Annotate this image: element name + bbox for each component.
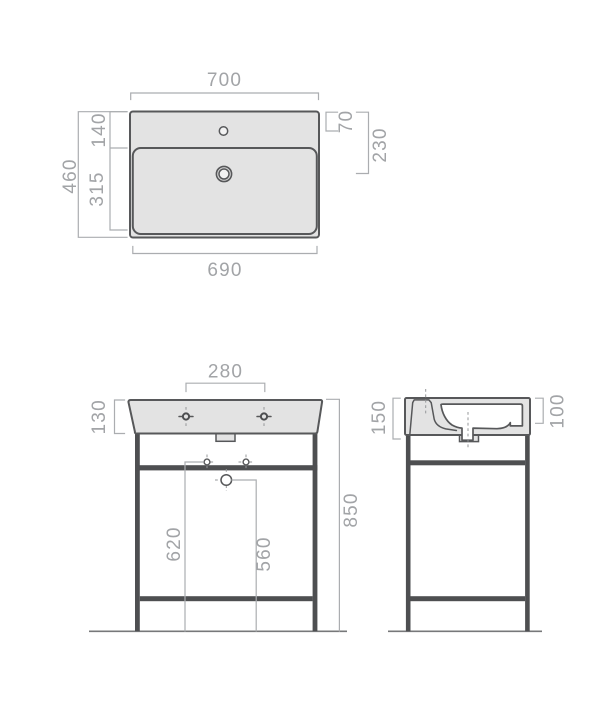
dim-line-total-height <box>327 399 340 631</box>
dim-label-bowl-width: 690 <box>207 260 242 281</box>
siphon-outlet-circle <box>221 475 232 486</box>
dim-label-tap-offset: 70 <box>336 110 357 134</box>
dim-label-hole-height: 620 <box>164 526 185 561</box>
technical-drawing-page: 700 690 460 140 315 70 230 <box>0 0 611 702</box>
dim-label-basin-height: 130 <box>89 399 110 434</box>
dim-label-front-height: 150 <box>369 400 390 435</box>
stand-upper-crossbar-side <box>411 460 526 465</box>
dim-line-hole-height <box>185 462 203 631</box>
dim-label-tap-spacing: 280 <box>208 362 243 383</box>
dim-label-drain-offset: 230 <box>370 127 391 162</box>
dim-line-front-height <box>393 398 400 439</box>
stand-leg-front-side <box>406 435 411 631</box>
dim-line-drain-height <box>232 480 256 631</box>
dim-label-deck-depth: 140 <box>89 112 110 147</box>
tap-hole-top <box>219 127 227 135</box>
stand-lower-crossbar-front <box>140 596 313 601</box>
side-view: 150 100 <box>369 389 569 631</box>
tap-hole-front-left <box>183 413 189 419</box>
dim-line-back-height <box>536 398 544 423</box>
front-view: 280 130 850 620 560 <box>89 362 362 632</box>
stand-leg-left-front <box>135 434 140 632</box>
drawing-canvas: 700 690 460 140 315 70 230 <box>0 0 611 702</box>
basin-bowl-rect-top <box>133 148 317 234</box>
drain-stub-front <box>216 434 235 442</box>
dim-line-outer-width <box>131 93 319 100</box>
dim-label-total-depth: 460 <box>60 158 81 193</box>
frame-hole-left <box>204 459 210 465</box>
dim-label-outer-width: 700 <box>207 70 242 91</box>
top-view: 700 690 460 140 315 70 230 <box>60 70 391 281</box>
dim-line-basin-height <box>115 400 125 434</box>
stand-leg-right-front <box>313 434 318 632</box>
stand-lower-crossbar-side <box>411 596 526 601</box>
tap-hole-front-right <box>261 413 267 419</box>
dim-label-bowl-depth: 315 <box>87 171 108 206</box>
dim-line-deck-bowl-depth <box>110 112 127 230</box>
drain-hole-inner-top <box>219 169 229 179</box>
basin-front <box>128 400 322 434</box>
dim-label-back-height: 100 <box>548 393 569 428</box>
frame-hole-right <box>243 459 249 465</box>
dim-label-drain-height: 560 <box>254 536 275 571</box>
dim-line-drain-offset <box>357 112 369 173</box>
dim-line-bowl-width <box>133 247 317 254</box>
dim-line-tap-spacing <box>186 383 265 391</box>
dim-label-total-height: 850 <box>341 492 362 527</box>
stand-leg-back-side <box>525 435 530 631</box>
